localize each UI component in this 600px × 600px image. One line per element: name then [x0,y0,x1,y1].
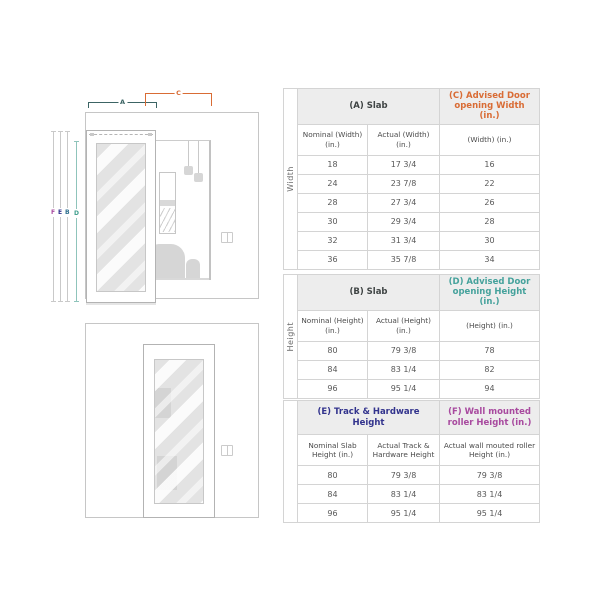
track-spec-table: (E) Track & Hardware Height (F) Wall mou… [297,400,540,523]
dimension-line-f: F [53,131,54,302]
col-header: Nominal Slab Height (in.) [298,435,368,466]
dimension-label-a: A [118,98,127,106]
col-header: Actual wall mouted roller Height (in.) [440,435,540,466]
light-switch-icon [221,232,233,243]
table-cell: 35 7/8 [368,250,440,269]
door-glass [96,143,146,292]
table-row: 80 79 3/8 79 3/8 [298,466,540,485]
pendant-light-icon [184,166,193,175]
table-row: 24 23 7/8 22 [298,174,540,193]
track-hardware-table: (E) Track & Hardware Height (F) Wall mou… [283,400,540,523]
table-cell: 83 1/4 [440,485,540,504]
table-cell: 27 3/4 [368,193,440,212]
col-header: Actual (Height) (in.) [368,310,440,341]
dimension-bracket-c: C [145,93,212,106]
roller-mark [148,133,152,136]
table-row: 32 31 3/4 30 [298,231,540,250]
table-row: 28 27 3/4 26 [298,193,540,212]
roller-mark [90,133,94,136]
height-table-side-label: Height [283,274,298,399]
pendant-light-string [198,141,199,173]
table-row: 84 83 1/4 82 [298,360,540,379]
table-row: 30 29 3/4 28 [298,212,540,231]
dimension-label-d: D [74,209,79,218]
dimension-label-c: C [174,89,183,97]
table-cell: 31 3/4 [368,231,440,250]
table-cell: 30 [298,212,368,231]
table-cell: 83 1/4 [368,485,440,504]
slab-width-header: (A) Slab [298,89,440,125]
table-cell: 24 [298,174,368,193]
table-cell: 83 1/4 [368,360,440,379]
table-cell: 29 3/4 [368,212,440,231]
track-table-side-label [283,400,298,523]
dimension-label-e: E [58,208,62,217]
advised-width-header: (C) Advised Door opening Width (in.) [440,89,540,125]
table-cell: 34 [440,250,540,269]
glass-reflection [97,144,145,291]
dimension-line-b: B [67,131,68,302]
wall-roller-header: (F) Wall mounted roller Height (in.) [440,401,540,435]
door-opening [155,140,211,280]
table-cell: 84 [298,360,368,379]
table-cell: 17 3/4 [368,155,440,174]
table-cell: 16 [440,155,540,174]
col-header: Actual Track & Hardware Height [368,435,440,466]
table-cell: 94 [440,379,540,398]
track-hardware-header: (E) Track & Hardware Height [298,401,440,435]
floor-line [155,278,209,280]
height-spec-table: (B) Slab (D) Advised Door opening Height… [297,274,540,399]
table-cell: 79 3/8 [368,341,440,360]
col-header: (Width) (in.) [440,124,540,155]
table-row: 96 95 1/4 95 1/4 [298,504,540,523]
table-cell: 79 3/8 [368,466,440,485]
table-cell: 95 1/4 [440,504,540,523]
table-row: 36 35 7/8 34 [298,250,540,269]
door-slab [86,130,156,303]
table-cell: 96 [298,504,368,523]
cabinet-shelf [160,200,175,206]
width-spec-table: (A) Slab (C) Advised Door opening Width … [297,88,540,270]
dimension-line-e: E [60,131,61,302]
dimension-label-b: B [65,208,70,217]
pendant-light-icon [194,173,203,182]
table-row: 80 79 3/8 78 [298,341,540,360]
width-table: Width (A) Slab (C) Advised Door opening … [283,88,540,270]
table-cell: 28 [440,212,540,231]
table-cell: 30 [440,231,540,250]
pendant-light-string [188,141,189,166]
table-cell: 22 [440,174,540,193]
table-row: 96 95 1/4 94 [298,379,540,398]
dimension-line-d: D [76,141,77,302]
table-cell: 95 1/4 [368,504,440,523]
door-size-chart: A C F E B D [0,0,600,600]
table-cell: 78 [440,341,540,360]
table-cell: 84 [298,485,368,504]
table-cell: 23 7/8 [368,174,440,193]
cabinet-slats [160,208,175,232]
table-cell: 80 [298,341,368,360]
table-cell: 80 [298,466,368,485]
glass-reflection [155,360,203,503]
advised-height-header: (D) Advised Door opening Height (in.) [440,275,540,311]
table-cell: 82 [440,360,540,379]
table-cell: 26 [440,193,540,212]
table-cell: 96 [298,379,368,398]
col-header: Nominal (Width) (in.) [298,124,368,155]
door-slab-closed [143,344,215,518]
col-header: Actual (Width) (in.) [368,124,440,155]
table-cell: 32 [298,231,368,250]
height-table: Height (B) Slab (D) Advised Door opening… [283,274,540,399]
table-cell: 95 1/4 [368,379,440,398]
door-glass [154,359,204,504]
light-switch-icon [221,445,233,456]
table-cell: 79 3/8 [440,466,540,485]
dimension-label-f: F [51,208,55,217]
width-table-side-label: Width [283,88,298,270]
slab-height-header: (B) Slab [298,275,440,311]
col-header: (Height) (in.) [440,310,540,341]
armchair-icon [155,244,185,280]
table-cell: 18 [298,155,368,174]
col-header: Nominal (Height) (in.) [298,310,368,341]
ottoman-icon [186,259,200,280]
table-row: 18 17 3/4 16 [298,155,540,174]
table-cell: 28 [298,193,368,212]
table-cell: 36 [298,250,368,269]
table-row: 84 83 1/4 83 1/4 [298,485,540,504]
track-dashed-line [89,134,153,135]
cabinet-icon [159,172,176,234]
